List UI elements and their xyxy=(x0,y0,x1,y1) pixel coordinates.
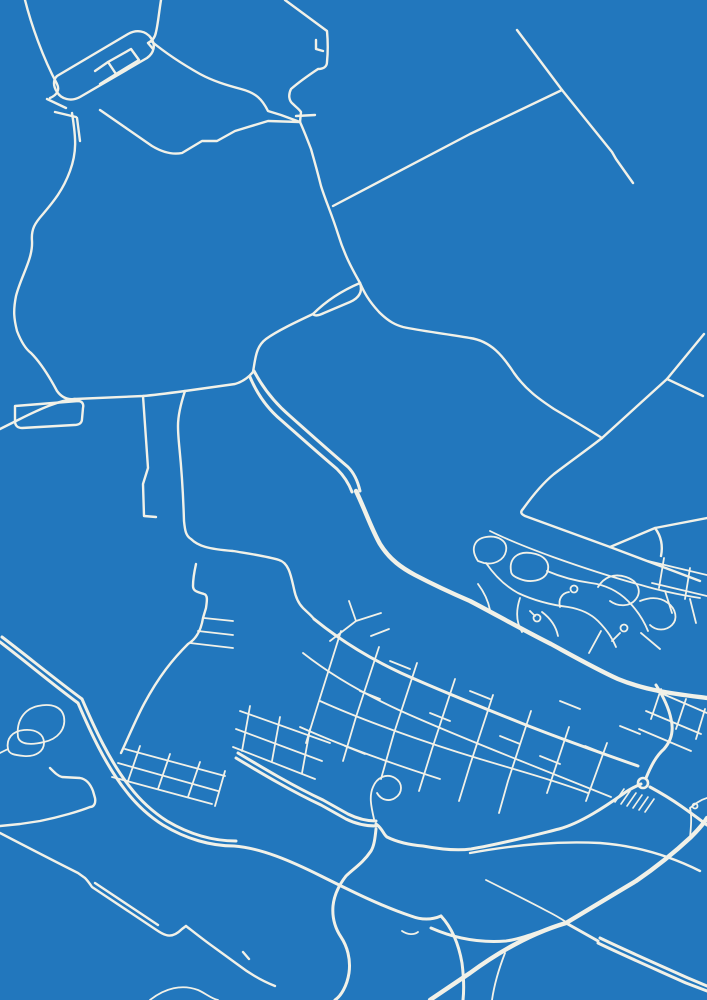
road-path xyxy=(296,115,315,116)
map-svg xyxy=(0,0,707,1000)
map-background xyxy=(0,0,707,1000)
street-map-poster xyxy=(0,0,707,1000)
